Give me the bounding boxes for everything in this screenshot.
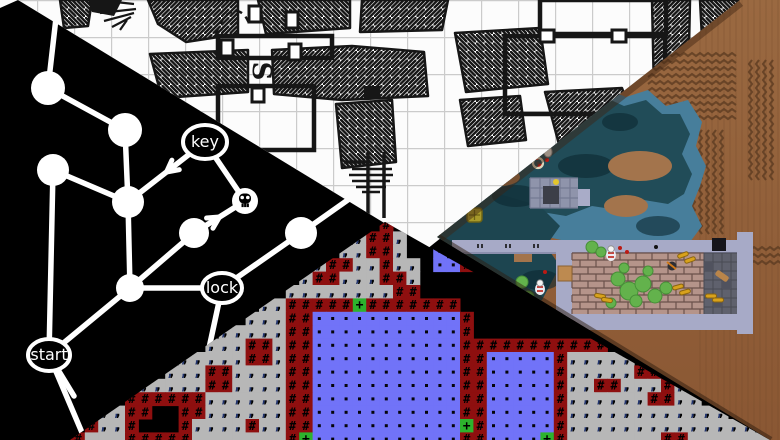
svg-text:#: # bbox=[369, 231, 377, 245]
svg-text:#: # bbox=[664, 432, 672, 440]
svg-text:#: # bbox=[383, 231, 391, 245]
svg-text:#: # bbox=[195, 392, 203, 406]
svg-text:#: # bbox=[289, 432, 297, 440]
svg-text:#: # bbox=[128, 419, 136, 433]
svg-text:#: # bbox=[141, 432, 149, 440]
svg-text:#: # bbox=[450, 298, 458, 312]
svg-text:#: # bbox=[597, 379, 605, 393]
svg-text:#: # bbox=[141, 405, 149, 419]
svg-text:,: , bbox=[235, 432, 243, 440]
svg-text:#: # bbox=[262, 352, 270, 366]
graph-node bbox=[108, 113, 142, 147]
svg-text:+: + bbox=[356, 298, 364, 313]
svg-text:#: # bbox=[463, 312, 471, 326]
skull-node-icon bbox=[232, 188, 258, 214]
graph-node bbox=[112, 186, 144, 218]
svg-text:#: # bbox=[463, 352, 471, 366]
svg-text:,: , bbox=[717, 432, 725, 440]
svg-text:#: # bbox=[383, 258, 391, 272]
svg-text:#: # bbox=[463, 432, 471, 440]
svg-text:#: # bbox=[316, 271, 324, 285]
graph-node bbox=[116, 274, 144, 302]
svg-text:#: # bbox=[302, 405, 310, 419]
svg-text:,: , bbox=[744, 432, 752, 440]
svg-text:#: # bbox=[222, 365, 230, 379]
graph-node-label-key: key bbox=[191, 132, 219, 151]
svg-text:#: # bbox=[289, 312, 297, 326]
svg-text:#: # bbox=[342, 258, 350, 272]
svg-text:#: # bbox=[302, 338, 310, 352]
svg-text:#: # bbox=[396, 285, 404, 299]
svg-text:#: # bbox=[476, 405, 484, 419]
svg-text:#: # bbox=[302, 392, 310, 406]
svg-text:#: # bbox=[329, 271, 337, 285]
svg-text:#: # bbox=[302, 379, 310, 393]
svg-text:+: + bbox=[302, 432, 310, 440]
svg-text:#: # bbox=[289, 379, 297, 393]
svg-text:,: , bbox=[597, 432, 605, 440]
svg-text:#: # bbox=[289, 352, 297, 366]
svg-text:#: # bbox=[302, 352, 310, 366]
svg-text:#: # bbox=[289, 405, 297, 419]
svg-text:#: # bbox=[463, 325, 471, 339]
svg-text:#: # bbox=[463, 365, 471, 379]
svg-text:#: # bbox=[463, 379, 471, 393]
graph-node bbox=[179, 218, 209, 248]
svg-text:#: # bbox=[222, 379, 230, 393]
svg-text:#: # bbox=[423, 298, 431, 312]
svg-text:#: # bbox=[517, 338, 525, 352]
svg-text:#: # bbox=[182, 405, 190, 419]
svg-text:,: , bbox=[208, 432, 216, 440]
svg-text:#: # bbox=[128, 405, 136, 419]
svg-text:#: # bbox=[476, 432, 484, 440]
svg-text:#: # bbox=[182, 432, 190, 440]
svg-text:#: # bbox=[476, 379, 484, 393]
svg-text:,: , bbox=[610, 432, 618, 440]
svg-text:#: # bbox=[557, 379, 565, 393]
svg-text:#: # bbox=[289, 325, 297, 339]
svg-text:#: # bbox=[383, 271, 391, 285]
svg-text:#: # bbox=[490, 338, 498, 352]
svg-text:#: # bbox=[289, 338, 297, 352]
svg-text:,: , bbox=[222, 432, 230, 440]
svg-text:#: # bbox=[262, 338, 270, 352]
graph-node bbox=[31, 71, 65, 105]
svg-text:#: # bbox=[396, 298, 404, 312]
svg-text:,: , bbox=[691, 432, 699, 440]
svg-text:#: # bbox=[302, 325, 310, 339]
svg-text:#: # bbox=[249, 338, 257, 352]
svg-text:#: # bbox=[342, 298, 350, 312]
svg-text:#: # bbox=[543, 338, 551, 352]
svg-text:#: # bbox=[329, 298, 337, 312]
svg-text:#: # bbox=[289, 392, 297, 406]
svg-text:,: , bbox=[583, 432, 591, 440]
svg-text:#: # bbox=[208, 379, 216, 393]
svg-text:,: , bbox=[624, 432, 632, 440]
svg-text:,: , bbox=[195, 432, 203, 440]
svg-text:#: # bbox=[302, 365, 310, 379]
svg-text:#: # bbox=[168, 432, 176, 440]
svg-text:#: # bbox=[208, 365, 216, 379]
svg-text:#: # bbox=[182, 419, 190, 433]
svg-text:#: # bbox=[557, 365, 565, 379]
svg-text:#: # bbox=[369, 298, 377, 312]
svg-text:#: # bbox=[677, 432, 685, 440]
svg-text:#: # bbox=[557, 405, 565, 419]
svg-text:#: # bbox=[155, 432, 163, 440]
svg-text:#: # bbox=[476, 419, 484, 433]
svg-text:#: # bbox=[302, 312, 310, 326]
svg-text:#: # bbox=[476, 392, 484, 406]
svg-text:#: # bbox=[503, 338, 511, 352]
svg-text:#: # bbox=[168, 392, 176, 406]
svg-text:#: # bbox=[249, 352, 257, 366]
svg-text:#: # bbox=[289, 365, 297, 379]
svg-text:#: # bbox=[557, 352, 565, 366]
svg-text:#: # bbox=[289, 298, 297, 312]
svg-text:,: , bbox=[248, 432, 256, 440]
game-map-collage: keylockstartS#,,##,,,,,,##,,,,##,,,,#,,,… bbox=[0, 0, 780, 440]
svg-text:#: # bbox=[383, 245, 391, 259]
svg-text:#: # bbox=[249, 419, 257, 433]
svg-text:#: # bbox=[610, 379, 618, 393]
svg-text:#: # bbox=[195, 405, 203, 419]
svg-text:#: # bbox=[329, 258, 337, 272]
svg-text:#: # bbox=[664, 392, 672, 406]
svg-text:#: # bbox=[128, 432, 136, 440]
graph-node-label-lock: lock bbox=[206, 278, 239, 297]
svg-text:#: # bbox=[557, 338, 565, 352]
svg-text:#: # bbox=[302, 298, 310, 312]
svg-text:#: # bbox=[182, 392, 190, 406]
svg-text:#: # bbox=[316, 298, 324, 312]
svg-text:#: # bbox=[396, 271, 404, 285]
svg-text:#: # bbox=[557, 392, 565, 406]
svg-text:,: , bbox=[114, 432, 122, 440]
collage-svg: keylockstartS#,,##,,,,,,##,,,,##,,,,#,,,… bbox=[0, 0, 780, 440]
svg-text:#: # bbox=[530, 338, 538, 352]
svg-text:,: , bbox=[731, 432, 739, 440]
svg-text:#: # bbox=[369, 245, 377, 259]
svg-text:#: # bbox=[570, 338, 578, 352]
graph-node-label-start: start bbox=[30, 345, 67, 364]
graph-node bbox=[37, 154, 69, 186]
svg-text:#: # bbox=[141, 392, 149, 406]
svg-text:#: # bbox=[436, 298, 444, 312]
svg-text:,: , bbox=[650, 432, 658, 440]
svg-text:,: , bbox=[262, 432, 270, 440]
svg-text:+: + bbox=[543, 432, 551, 440]
svg-text:#: # bbox=[289, 419, 297, 433]
svg-text:,: , bbox=[101, 432, 109, 440]
svg-text:#: # bbox=[463, 392, 471, 406]
graph-node bbox=[285, 217, 317, 249]
svg-text:,: , bbox=[704, 432, 712, 440]
svg-text:,: , bbox=[275, 432, 283, 440]
svg-text:,: , bbox=[88, 432, 96, 440]
svg-text:#: # bbox=[557, 432, 565, 440]
svg-text:#: # bbox=[302, 419, 310, 433]
svg-text:#: # bbox=[476, 338, 484, 352]
svg-text:,: , bbox=[637, 432, 645, 440]
svg-text:#: # bbox=[409, 285, 417, 299]
svg-text:,: , bbox=[570, 432, 578, 440]
svg-text:#: # bbox=[651, 392, 659, 406]
svg-text:#: # bbox=[557, 419, 565, 433]
svg-text:#: # bbox=[383, 298, 391, 312]
svg-text:#: # bbox=[409, 298, 417, 312]
svg-text:#: # bbox=[155, 392, 163, 406]
svg-text:#: # bbox=[463, 405, 471, 419]
svg-text:#: # bbox=[476, 365, 484, 379]
secret-door-label: S bbox=[246, 62, 276, 81]
svg-text:#: # bbox=[476, 352, 484, 366]
svg-text:#: # bbox=[463, 338, 471, 352]
svg-text:#: # bbox=[584, 338, 592, 352]
